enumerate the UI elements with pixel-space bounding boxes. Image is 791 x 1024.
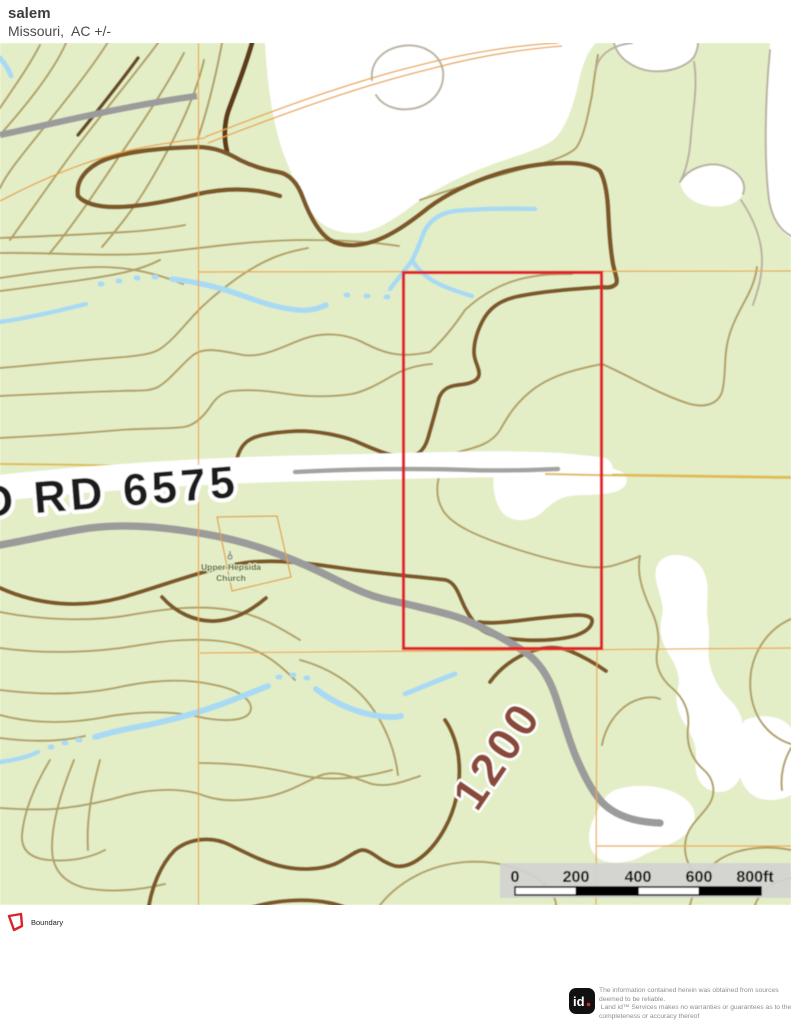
svg-text:Upper Hepsida: Upper Hepsida: [201, 562, 261, 572]
svg-text:id: id: [573, 994, 585, 1009]
svg-text:600: 600: [686, 869, 713, 886]
svg-text:400: 400: [625, 869, 652, 886]
svg-text:Church: Church: [216, 573, 246, 583]
svg-text:800ft: 800ft: [736, 869, 774, 886]
svg-text:0: 0: [511, 869, 520, 886]
svg-text:200: 200: [563, 869, 590, 886]
